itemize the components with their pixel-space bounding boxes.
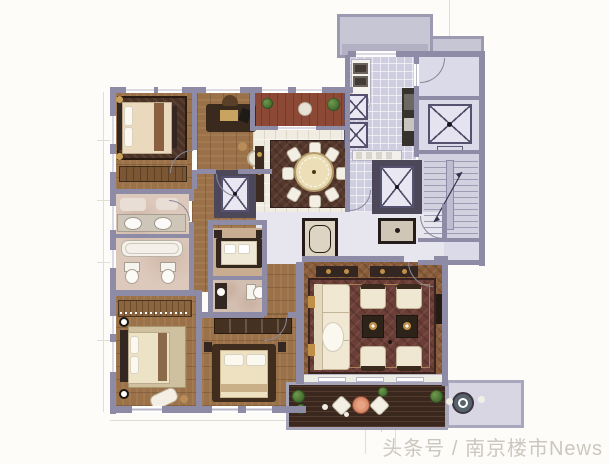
wall-dressing-right	[262, 224, 267, 316]
master-bed-throw	[158, 333, 167, 381]
wall-living-top-a	[302, 256, 404, 262]
window	[212, 406, 238, 413]
daybed-pillow	[238, 244, 250, 254]
counter-appliance	[376, 152, 382, 159]
window	[296, 87, 322, 93]
elevator-1-dot	[447, 122, 452, 127]
exterior-contour-bottom	[110, 420, 306, 421]
window	[262, 87, 288, 93]
console-ornament	[402, 269, 407, 274]
small-table	[298, 102, 312, 116]
ensuite-vanity	[215, 283, 227, 309]
sideboard-plate	[257, 152, 262, 157]
master-side-table	[119, 317, 129, 327]
console-cabinet	[316, 266, 358, 277]
nightstand	[204, 342, 212, 352]
floor-plan-image: 头条号 / 南京楼市News	[0, 0, 609, 464]
wall-bed2-living	[296, 262, 304, 384]
window	[110, 342, 116, 372]
gold-side-table	[308, 296, 315, 308]
dining-chair	[282, 167, 294, 180]
balcony-deco	[344, 412, 349, 417]
console-ornament	[344, 269, 349, 274]
counter-appliance	[366, 152, 372, 159]
bed-2-pillow	[224, 354, 244, 366]
ensuite-basin	[217, 288, 225, 296]
wall-bed2-top-b	[288, 312, 302, 318]
oven	[353, 63, 368, 74]
wall-dressing-left	[208, 224, 213, 316]
bedside-lamp	[116, 153, 123, 160]
side-table	[238, 142, 247, 151]
bed-throw	[154, 103, 164, 151]
rug-center-dot	[388, 340, 392, 344]
wall-elevator-stairs	[418, 150, 480, 154]
bedroom-2-entry-floor	[266, 264, 298, 314]
bed-2-throw	[220, 384, 268, 392]
window	[278, 126, 316, 130]
wall-bath-divider	[115, 234, 189, 238]
terrace-chair	[478, 396, 485, 403]
wall-bed1-study-a	[192, 87, 197, 150]
master-closet-hangers	[120, 312, 190, 314]
sofa-cushion-line	[323, 312, 349, 313]
window	[110, 250, 116, 268]
wall-dressing-top	[208, 220, 267, 225]
wall-lobby-elevator	[418, 96, 480, 100]
terrace-chair	[446, 398, 453, 405]
wall-stairs-bottom	[418, 238, 480, 242]
wall-master-top	[110, 290, 198, 296]
foyer-rug-inner	[309, 225, 331, 253]
dressing-side-table	[214, 230, 222, 238]
dining-chair	[309, 195, 321, 208]
sink-basin	[124, 217, 142, 230]
desk-chair	[222, 95, 238, 106]
terrace-table-parasol	[458, 398, 468, 408]
wall-bath-right-a	[189, 189, 194, 201]
master-pouf	[180, 395, 188, 403]
cooktop	[404, 94, 414, 110]
console-ornament	[326, 269, 331, 274]
sofa-back	[314, 284, 323, 370]
wall-study-utility	[250, 87, 255, 131]
window	[132, 406, 162, 413]
dimension-tick	[97, 262, 110, 263]
master-bed-headboard	[120, 330, 128, 382]
window	[414, 64, 419, 86]
window	[246, 406, 272, 413]
wall-right-outer	[479, 51, 485, 266]
balcony-deco	[322, 404, 328, 410]
window	[126, 87, 154, 93]
entry-rug-dot	[395, 228, 400, 233]
kitchen-sink-2	[404, 118, 414, 131]
armchair	[396, 284, 422, 309]
coffee-table-flowers	[369, 322, 377, 330]
master-side-table	[119, 389, 129, 399]
wall-bath-right-b	[189, 222, 194, 290]
plant	[262, 98, 273, 109]
master-closet	[118, 300, 192, 317]
balcony-plant	[292, 390, 305, 403]
nightstand	[278, 342, 286, 352]
bed-pillow	[124, 127, 133, 147]
wall-study-bottom-a	[197, 169, 216, 174]
bed-2-pillow	[246, 354, 266, 366]
wall-living-right	[442, 262, 448, 386]
counter-appliance	[386, 152, 392, 159]
window	[158, 87, 182, 93]
dimension-tick	[97, 340, 110, 341]
desk-blotter	[220, 110, 238, 121]
sofa-chaise-pillow	[322, 322, 344, 352]
toilet-bowl	[125, 269, 139, 284]
armchair	[396, 346, 422, 371]
bath-mat	[120, 198, 146, 211]
dimension-tick	[97, 200, 110, 201]
wall-lobby-top	[418, 51, 484, 57]
coffee-table-flowers	[403, 322, 411, 330]
wall-study-bottom-b	[238, 169, 272, 174]
elevator-b-dot	[395, 185, 399, 189]
gold-side-table	[308, 344, 315, 356]
window	[110, 206, 116, 230]
window	[206, 87, 240, 93]
master-bed-pillow	[130, 356, 139, 374]
balcony-table	[352, 396, 370, 414]
dimension-tick	[97, 140, 110, 141]
counter-appliance	[356, 152, 362, 159]
armchair	[360, 284, 386, 309]
bathtub-inner	[125, 243, 179, 254]
wall-master-bed2	[196, 290, 202, 412]
bed-pillow	[124, 106, 133, 126]
chandelier	[312, 170, 316, 174]
bidet-bowl	[161, 269, 175, 284]
balcony-plant	[430, 390, 443, 403]
watermark: 头条号 / 南京楼市News	[382, 432, 603, 461]
console-ornament	[380, 269, 385, 274]
dimension-line-balcony-a	[365, 428, 366, 454]
microwave	[353, 76, 368, 87]
window	[110, 116, 116, 144]
window	[110, 316, 116, 334]
window	[110, 154, 116, 172]
armchair	[360, 346, 386, 371]
daybed-pillow	[224, 244, 236, 254]
wall-kitchen-left	[345, 55, 350, 167]
master-bed-pillow	[130, 336, 139, 354]
wall-dressing-ensuite	[208, 276, 267, 280]
bed-foot-bench	[172, 106, 177, 148]
bedside-lamp	[116, 96, 123, 103]
window	[356, 51, 396, 57]
wall-bath-top	[110, 189, 194, 194]
plant	[327, 98, 340, 111]
